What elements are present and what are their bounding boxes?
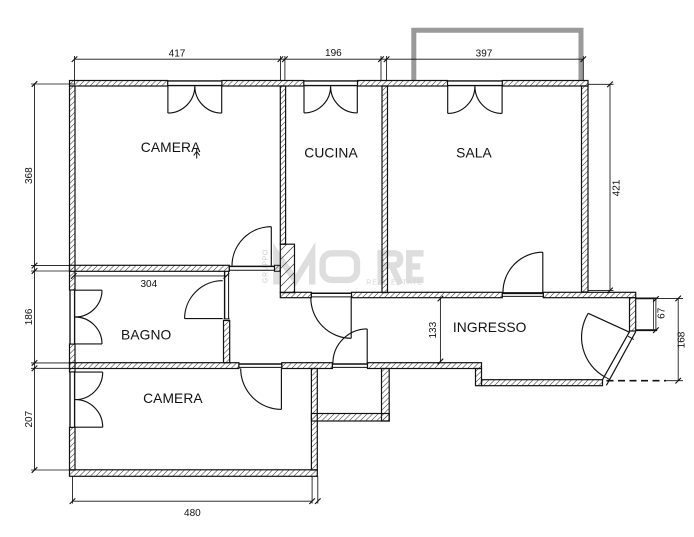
svg-text:BAGNO: BAGNO [121, 327, 172, 342]
svg-text:196: 196 [325, 48, 342, 59]
svg-text:INGRESSO: INGRESSO [453, 320, 527, 335]
svg-text:186: 186 [24, 308, 35, 325]
svg-text:168: 168 [677, 331, 688, 348]
svg-text:CUCINA: CUCINA [304, 145, 358, 160]
svg-text:REAL ESTATE: REAL ESTATE [366, 280, 423, 287]
svg-text:133: 133 [428, 321, 439, 338]
svg-text:67: 67 [656, 307, 667, 319]
svg-text:417: 417 [169, 49, 186, 60]
svg-text:CAMERA: CAMERA [143, 391, 203, 406]
svg-text:207: 207 [24, 410, 35, 427]
svg-text:SALA: SALA [456, 145, 492, 160]
svg-text:480: 480 [184, 508, 201, 519]
svg-text:421: 421 [612, 179, 623, 196]
svg-text:397: 397 [476, 49, 493, 60]
svg-text:368: 368 [24, 167, 35, 184]
svg-text:304: 304 [140, 279, 157, 290]
svg-text:CAMERA: CAMERA [141, 140, 201, 155]
